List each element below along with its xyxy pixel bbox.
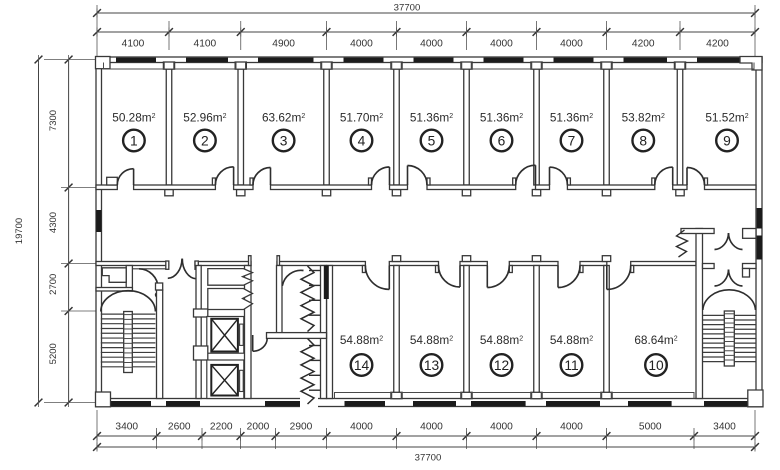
svg-text:54.88m2: 54.88m2 xyxy=(480,333,523,347)
svg-text:37700: 37700 xyxy=(394,3,421,14)
svg-text:5: 5 xyxy=(428,133,436,148)
svg-text:4000: 4000 xyxy=(560,39,583,50)
svg-text:2900: 2900 xyxy=(290,422,313,433)
svg-text:52.96m2: 52.96m2 xyxy=(183,111,226,125)
svg-text:4000: 4000 xyxy=(420,39,443,50)
svg-text:2700: 2700 xyxy=(48,274,59,295)
svg-text:50.28m2: 50.28m2 xyxy=(112,111,155,125)
svg-text:51.36m2: 51.36m2 xyxy=(480,111,523,125)
svg-text:4: 4 xyxy=(358,133,366,148)
svg-text:51.36m2: 51.36m2 xyxy=(550,111,593,125)
svg-text:11: 11 xyxy=(564,358,578,373)
svg-text:8: 8 xyxy=(639,133,647,148)
svg-text:4300: 4300 xyxy=(48,212,59,233)
svg-text:54.88m2: 54.88m2 xyxy=(410,333,453,347)
svg-text:53.82m2: 53.82m2 xyxy=(622,111,665,125)
svg-text:2000: 2000 xyxy=(247,422,270,433)
svg-text:63.62m2: 63.62m2 xyxy=(262,111,305,125)
svg-text:4000: 4000 xyxy=(560,422,583,433)
svg-text:14: 14 xyxy=(354,358,370,373)
svg-text:19700: 19700 xyxy=(14,218,25,244)
svg-text:3400: 3400 xyxy=(115,422,138,433)
svg-text:51.70m2: 51.70m2 xyxy=(340,111,383,125)
svg-text:2600: 2600 xyxy=(168,422,191,433)
svg-text:4000: 4000 xyxy=(350,422,373,433)
svg-text:51.52m2: 51.52m2 xyxy=(705,111,748,125)
svg-text:5000: 5000 xyxy=(639,422,662,433)
svg-text:4200: 4200 xyxy=(632,39,655,50)
svg-text:4100: 4100 xyxy=(122,39,145,50)
svg-text:4200: 4200 xyxy=(706,39,729,50)
svg-text:9: 9 xyxy=(723,133,731,148)
svg-text:51.36m2: 51.36m2 xyxy=(410,111,453,125)
svg-text:7: 7 xyxy=(568,133,576,148)
svg-text:12: 12 xyxy=(494,358,509,373)
svg-text:10: 10 xyxy=(648,358,664,373)
svg-text:4900: 4900 xyxy=(272,39,295,50)
svg-text:4100: 4100 xyxy=(194,39,217,50)
svg-text:2200: 2200 xyxy=(210,422,233,433)
svg-text:1: 1 xyxy=(130,133,138,148)
svg-text:6: 6 xyxy=(498,133,506,148)
svg-text:54.88m2: 54.88m2 xyxy=(340,333,383,347)
svg-text:37700: 37700 xyxy=(415,453,442,464)
svg-text:4000: 4000 xyxy=(490,39,513,50)
svg-text:4000: 4000 xyxy=(350,39,373,50)
svg-text:7300: 7300 xyxy=(48,110,59,131)
svg-text:4000: 4000 xyxy=(490,422,513,433)
svg-text:5200: 5200 xyxy=(48,343,59,364)
svg-text:4000: 4000 xyxy=(420,422,443,433)
svg-text:2: 2 xyxy=(201,133,209,148)
svg-text:54.88m2: 54.88m2 xyxy=(550,333,593,347)
svg-text:13: 13 xyxy=(424,358,440,373)
svg-text:68.64m2: 68.64m2 xyxy=(634,333,677,347)
svg-text:3: 3 xyxy=(280,133,288,148)
svg-text:3400: 3400 xyxy=(713,422,736,433)
